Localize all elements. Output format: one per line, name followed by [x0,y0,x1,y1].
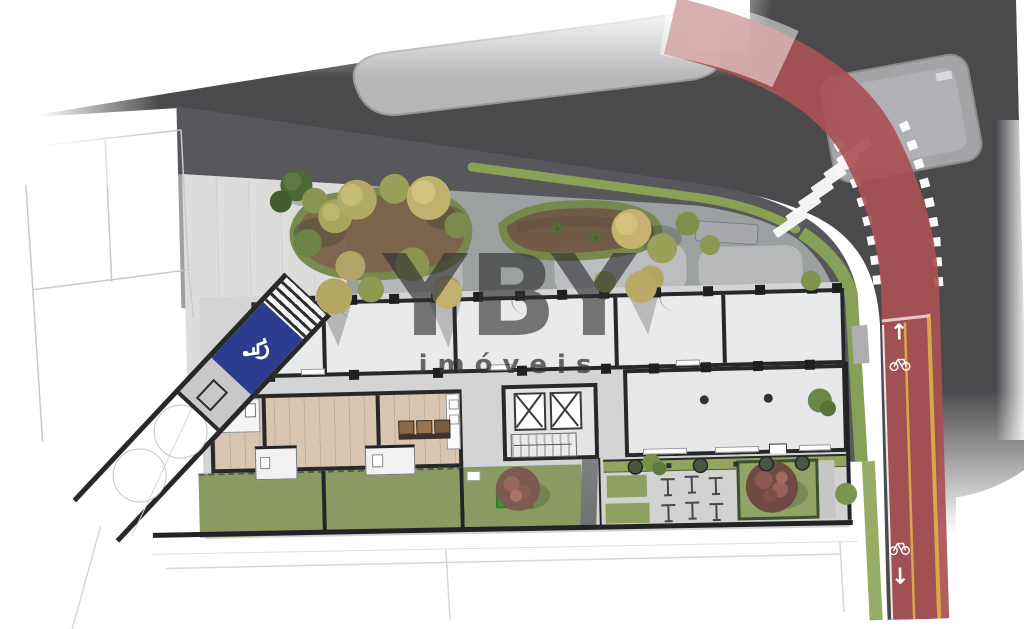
door-swing [659,296,674,311]
frame [416,420,432,434]
site-plan-canvas: ♿ [0,0,1024,629]
bench [466,471,480,481]
wheelchair-icon: ♿ [236,332,278,366]
shelf [399,434,451,440]
window [488,364,512,371]
frame [434,420,450,434]
window [715,446,759,453]
window [799,444,831,451]
handrail [514,444,572,446]
elevator-core [501,383,599,461]
column-dot [700,395,709,404]
toilet-fixture [372,454,383,467]
picture-frames [398,420,450,441]
garden-path [818,460,835,518]
courtyard-lawn [463,464,582,529]
stove-fixture [449,414,459,424]
door-swing [511,300,526,315]
window [676,359,700,366]
lawn-square [607,475,648,498]
unit-partition-wall [452,301,458,369]
lawn-square [605,503,649,524]
elevator-cab [550,391,583,430]
frame [398,420,414,434]
bathroom-cube [255,445,298,480]
plan-layer: ♿ [0,0,1024,629]
sink-fixture [449,399,459,409]
unit-partition-wall [613,297,619,365]
bright-planter [496,488,532,509]
window [643,448,687,455]
bathroom-cube [365,444,416,475]
column-dot [764,394,773,403]
window [301,369,325,376]
unit-partition-wall [721,295,727,363]
toilet-fixture [260,457,270,469]
door-swing [339,304,354,319]
lawn-gym-right [736,459,819,521]
elevator-cab [514,392,547,431]
building-hall-right [623,364,848,457]
stairs [511,432,578,458]
